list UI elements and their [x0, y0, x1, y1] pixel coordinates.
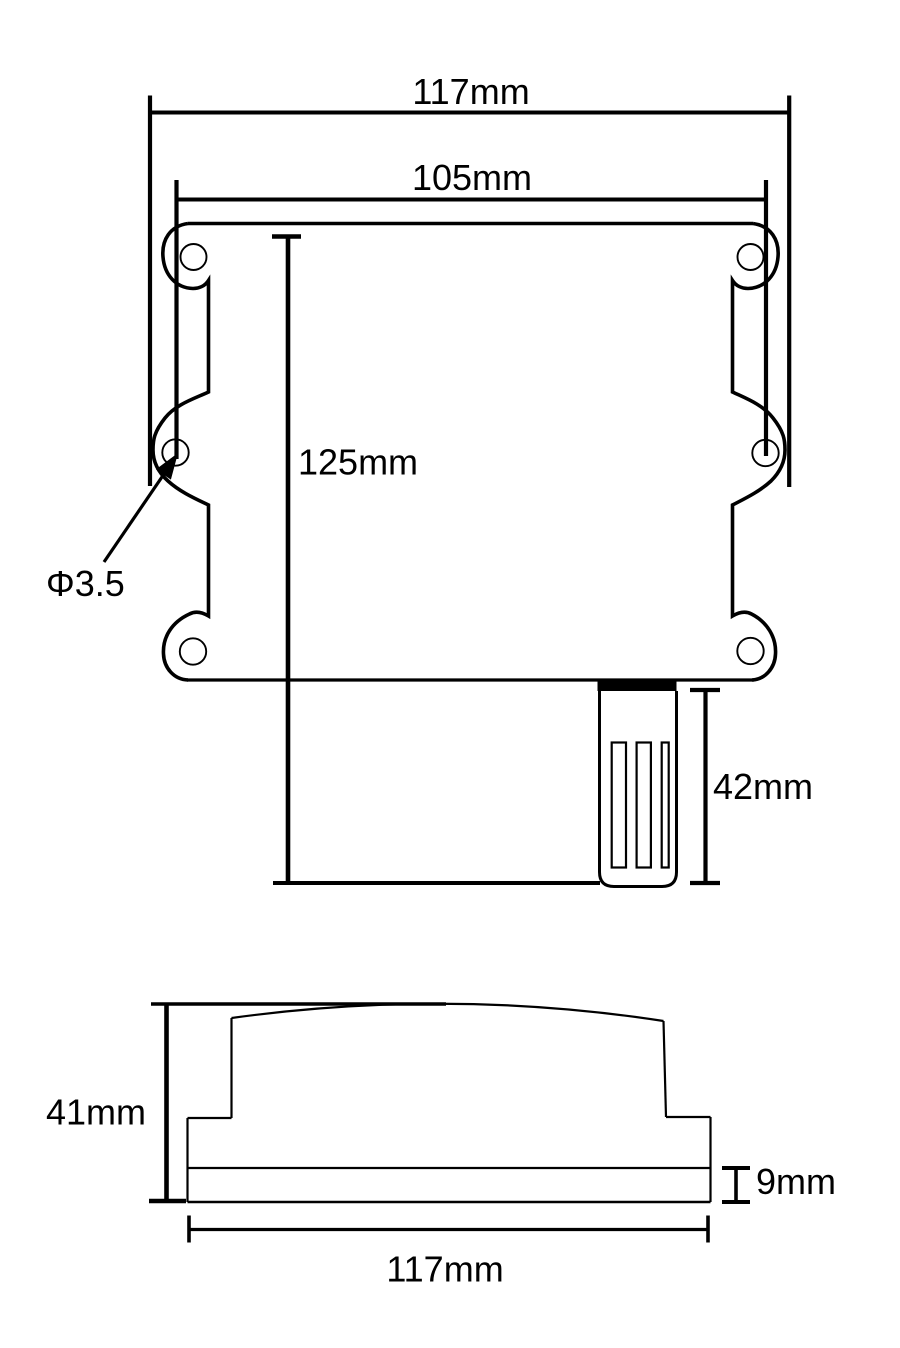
svg-text:Φ3.5: Φ3.5 — [46, 563, 125, 604]
svg-text:41mm: 41mm — [46, 1092, 146, 1133]
svg-text:105mm: 105mm — [412, 157, 532, 198]
svg-text:125mm: 125mm — [298, 442, 418, 483]
svg-text:117mm: 117mm — [386, 1249, 503, 1290]
svg-text:117mm: 117mm — [412, 71, 529, 112]
svg-text:9mm: 9mm — [756, 1161, 836, 1202]
svg-text:42mm: 42mm — [713, 766, 813, 807]
